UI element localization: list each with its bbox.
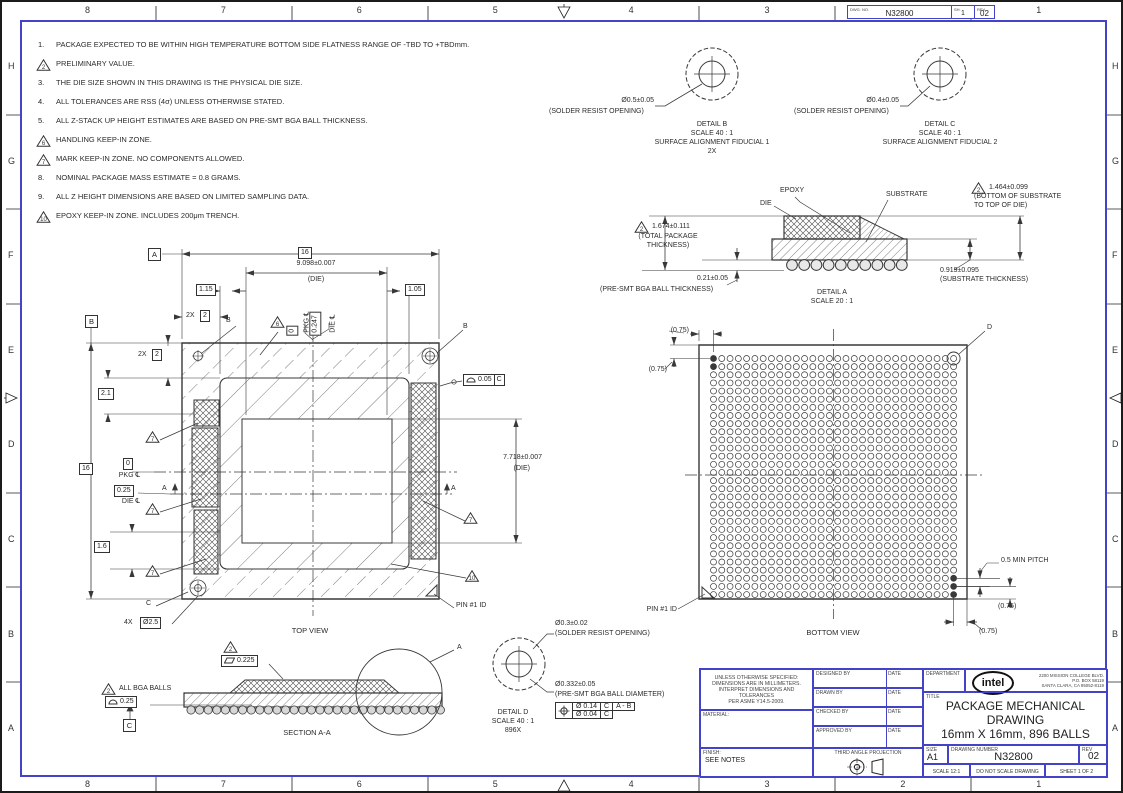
zone-col-4: 4 xyxy=(629,5,634,15)
finish-cell: FINISH: SEE NOTES xyxy=(700,748,813,778)
scale-value: SCALE 12:1 xyxy=(924,769,969,775)
flag-2: 2 xyxy=(223,641,238,653)
bottom-view-body xyxy=(665,329,1016,630)
detail-c-fiducial xyxy=(900,48,966,106)
zone-row-G: G xyxy=(1112,156,1119,166)
no-scale-note: DO NOT SCALE DRAWING xyxy=(971,769,1044,775)
detail-a-substrate-label: SUBSTRATE xyxy=(886,191,928,200)
detail-c-caption: SURFACE ALIGNMENT FIDUCIAL 2 xyxy=(883,139,998,148)
die-width-dim: 9.098±0.007 xyxy=(297,260,336,269)
bottom-view-caption: BOTTOM VIEW xyxy=(806,628,859,637)
zone-row-F: F xyxy=(1112,250,1118,260)
detail-a-bsd-note: (BOTTOM OF SUBSTRATE TO TOP OF DIE) xyxy=(974,193,1061,211)
detail-a-name: DETAIL A xyxy=(817,289,847,298)
datum-a-box: A xyxy=(148,248,161,261)
datum-c-ref: C xyxy=(146,600,151,609)
zone-row-E: E xyxy=(8,345,14,355)
detail-b-dim-note: (SOLDER RESIST OPENING) xyxy=(549,108,644,117)
scale-cell: SCALE 12:1 xyxy=(923,764,970,778)
dwg-number-strip: DWG. NO. N32800 SH. 1 REV. 02 xyxy=(847,5,995,19)
target-b-ref: B xyxy=(226,317,231,326)
zone-col-3: 3 xyxy=(765,5,770,15)
die-height-dim: 7.718±0.007 xyxy=(503,454,542,463)
zone-row-B: B xyxy=(8,629,14,639)
basic-2-dim: 2 xyxy=(200,310,210,322)
note-item: 3.THE DIE SIZE SHOWN IN THIS DRAWING IS … xyxy=(38,78,558,97)
section-aa-body xyxy=(127,649,454,735)
flatness-frame: 0.225 xyxy=(221,655,258,667)
material-cell: MATERIAL: xyxy=(700,710,813,748)
detail-b-name: DETAIL B xyxy=(697,121,727,130)
note-item: 7MARK KEEP-IN ZONE. NO COMPONENTS ALLOWE… xyxy=(38,154,558,173)
zone-col-8: 8 xyxy=(85,779,90,789)
datum-c-box: C xyxy=(123,719,136,732)
note-item: 6HANDLING KEEP-IN ZONE. xyxy=(38,135,558,154)
corner-qty: 4X xyxy=(124,619,133,628)
flag-7: 7 xyxy=(145,565,160,577)
zone-row-C: C xyxy=(1112,534,1119,544)
zone-col-7: 7 xyxy=(221,5,226,15)
ref-075: (0.75) xyxy=(979,628,997,637)
checked-by-cell: CHECKED BYDATE xyxy=(813,707,923,726)
zone-col-8: 8 xyxy=(85,5,90,15)
corner-dia-dim: Ø2.5 xyxy=(140,617,161,629)
zone-col-6: 6 xyxy=(357,779,362,789)
note-item: 4.ALL TOLERANCES ARE RSS (4σ) UNLESS OTH… xyxy=(38,97,558,116)
zone-row-C: C xyxy=(8,534,15,544)
note-item: 10EPOXY KEEP-IN ZONE. INCLUDES 200μm TRE… xyxy=(38,211,558,230)
basic-2-dim: 2 xyxy=(152,349,162,361)
detail-a-scale: SCALE 20 : 1 xyxy=(811,298,853,307)
detail-a-total-dim: 1.674±0.111 xyxy=(652,223,690,232)
department-cell: DEPARTMENT xyxy=(923,669,965,692)
pkg-cl-zero: 0 xyxy=(123,458,133,470)
zone-row-E: E xyxy=(1112,345,1118,355)
approved-by-cell: APPROVED BYDATE xyxy=(813,726,923,748)
detail-a-ref: A xyxy=(457,644,462,653)
zone-col-2: 2 xyxy=(900,779,905,789)
detail-d-scale: SCALE 40 : 1 xyxy=(492,718,534,727)
profile-tolerance-frame: 0.05 C xyxy=(463,374,505,386)
designed-by-cell: DESIGNED BYDATE xyxy=(813,669,923,688)
general-notes: 1.PACKAGE EXPECTED TO BE WITHIN HIGH TEM… xyxy=(38,40,558,230)
drawing-sheet: 8877665544332211HHGGFFEEDDCCBBAA DWG. NO… xyxy=(0,0,1123,793)
detail-a-bsd-dim: 1.464±0.099 xyxy=(989,184,1028,193)
ref-075: (0.75) xyxy=(671,327,689,336)
tolerance-note: UNLESS OTHERWISE SPECIFIED: DIMENSIONS A… xyxy=(701,675,812,705)
offset-left-dim: 1.15 xyxy=(196,284,216,296)
drawn-by-cell: DRAWN BYDATE xyxy=(813,688,923,707)
die-cl-label: DIE ℄ xyxy=(122,498,140,507)
target-b-ref: B xyxy=(463,323,468,332)
drawing-number-cell: DRAWING NUMBER N32800 xyxy=(948,745,1079,764)
dim-2-1: 2.1 xyxy=(98,388,114,400)
pitch-note: 0.5 MIN PITCH xyxy=(1001,557,1048,566)
flag-6: 6 xyxy=(270,316,285,328)
detail-b-caption: SURFACE ALIGNMENT FIDUCIAL 1 xyxy=(655,139,770,148)
detail-b-scale: SCALE 40 : 1 xyxy=(691,130,733,139)
brand-cell: intel 2200 MISSION COLLEGE BLVD. P.O. BO… xyxy=(965,669,1108,692)
sheet-cell: SHEET 1 OF 2 xyxy=(1045,764,1108,778)
offset-right-dim: 1.05 xyxy=(405,284,425,296)
die-height-note: (DIE) xyxy=(514,465,530,474)
dim-1-6: 1.6 xyxy=(94,541,110,553)
sheet-label: SH. xyxy=(954,7,961,12)
zone-row-B: B xyxy=(1112,629,1118,639)
tolerance-note-cell: UNLESS OTHERWISE SPECIFIED: DIMENSIONS A… xyxy=(700,669,813,710)
detail-a-ball-dim: 0.21±0.05 xyxy=(697,275,728,284)
zone-row-D: D xyxy=(1112,439,1119,449)
zone-row-F: F xyxy=(8,250,14,260)
profile-frame-balls: 0.25 xyxy=(105,696,137,708)
title-cell: TITLE PACKAGE MECHANICAL DRAWING 16mm X … xyxy=(923,692,1108,745)
zone-col-5: 5 xyxy=(493,779,498,789)
third-angle-label: THIRD ANGLE PROJECTION xyxy=(814,750,922,756)
dwg-no-label: DWG. NO. xyxy=(850,7,869,12)
section-a-label: A xyxy=(162,485,167,494)
pkg-height-dim: 16 xyxy=(79,463,93,475)
finish-value: SEE NOTES xyxy=(705,757,812,764)
datum-b-box: B xyxy=(85,315,98,328)
company-address: 2200 MISSION COLLEGE BLVD. P.O. BOX 5811… xyxy=(1039,673,1104,688)
sheet-note: SHEET 1 OF 2 xyxy=(1046,769,1107,775)
third-angle-projection-icon xyxy=(845,757,891,777)
svg-text:10: 10 xyxy=(469,576,476,582)
zone-row-G: G xyxy=(8,156,15,166)
detail-c-dim: Ø0.4±0.05 xyxy=(866,97,899,106)
zone-col-6: 6 xyxy=(357,5,362,15)
no-scale-cell: DO NOT SCALE DRAWING xyxy=(970,764,1045,778)
detail-a-die-label: DIE xyxy=(760,200,772,209)
detail-a-ball-note: (PRE-SMT BGA BALL THICKNESS) xyxy=(600,286,713,295)
flag-7: 7 xyxy=(145,503,160,515)
ref-075: (0.75) xyxy=(649,366,667,375)
flag-2: 2 xyxy=(101,683,116,695)
flag-10: 10 xyxy=(464,570,480,582)
flag-7: 7 xyxy=(145,431,160,443)
svg-text:10: 10 xyxy=(40,217,47,223)
zone-col-7: 7 xyxy=(221,779,226,789)
detail-c-scale: SCALE 40 : 1 xyxy=(919,130,961,139)
position-symbol-icon xyxy=(558,705,570,717)
detail-d-sro-note: (SOLDER RESIST OPENING) xyxy=(555,630,650,639)
all-bga-balls-note: ALL BGA BALLS xyxy=(119,685,171,694)
detail-d-ball-note: (PRE-SMT BGA BALL DIAMETER) xyxy=(555,691,664,700)
detail-d-name: DETAIL D xyxy=(498,709,529,718)
detail-a-balls xyxy=(787,260,908,271)
pkg-cl-label: PKG ℄ xyxy=(119,472,140,481)
zone-row-A: A xyxy=(1112,723,1118,733)
position-fcf: Ø 0.14 C A - B Ø 0.04 C xyxy=(555,702,635,719)
zone-row-A: A xyxy=(8,723,14,733)
datum-target-bottom-left xyxy=(190,580,206,596)
third-angle-cell: THIRD ANGLE PROJECTION xyxy=(813,748,923,778)
zone-col-4: 4 xyxy=(629,779,634,789)
detail-a-sub-note: (SUBSTRATE THICKNESS) xyxy=(940,276,1028,285)
detail-a-sub-dim: 0.919±0.095 xyxy=(940,267,979,276)
detail-c-dim-note: (SOLDER RESIST OPENING) xyxy=(794,108,889,117)
detail-b-qty: 2X xyxy=(708,148,717,157)
die-cl-label-rot: DIE ℄ xyxy=(329,315,338,333)
detail-b-fiducial xyxy=(655,48,738,106)
flag-2: 2 xyxy=(971,182,986,194)
title-block: UNLESS OTHERWISE SPECIFIED: DIMENSIONS A… xyxy=(699,668,1107,777)
qty-2x: 2X xyxy=(138,351,147,360)
note-item: 8.NOMINAL PACKAGE MASS ESTIMATE = 0.8 GR… xyxy=(38,173,558,192)
zone-row-D: D xyxy=(8,439,15,449)
detail-d-sro-dim: Ø0.3±0.02 xyxy=(555,620,588,629)
note-item: 9.ALL Z HEIGHT DIMENSIONS ARE BASED ON L… xyxy=(38,192,558,211)
top-view-caption: TOP VIEW xyxy=(292,626,328,635)
detail-c-name: DETAIL C xyxy=(925,121,956,130)
detail-d-ref: D xyxy=(987,324,992,333)
detail-d-ball-dim: Ø0.332±0.05 xyxy=(555,681,595,690)
qty-2x: 2X xyxy=(186,312,195,321)
die-cl-offset: 0.25 xyxy=(114,485,134,497)
die-cl-offset-rot: 0.247 xyxy=(309,312,321,336)
detail-a-total-note: (TOTAL PACKAGE THICKNESS) xyxy=(638,233,697,251)
zone-col-3: 3 xyxy=(765,779,770,789)
zone-row-H: H xyxy=(8,61,15,71)
zone-col-1: 1 xyxy=(1036,779,1041,789)
pkg-cl-zero-rot: 0 xyxy=(286,326,298,336)
datum-target-top-right xyxy=(422,348,438,364)
rev-label-strip: REV. xyxy=(977,7,986,12)
note-item: 1.PACKAGE EXPECTED TO BE WITHIN HIGH TEM… xyxy=(38,40,558,59)
section-a-label: A xyxy=(451,485,456,494)
detail-d-body xyxy=(493,634,554,692)
note-item: 5.ALL Z-STACK UP HEIGHT ESTIMATES ARE BA… xyxy=(38,116,558,135)
zone-row-H: H xyxy=(1112,61,1119,71)
zone-col-1: 1 xyxy=(1036,5,1041,15)
size-cell: SIZE A1 xyxy=(923,745,948,764)
pin1-label-bottom-view: PIN #1 ID xyxy=(647,606,677,615)
ref-075: (0.75) xyxy=(998,603,1016,612)
size-value: A1 xyxy=(927,752,947,762)
zone-col-5: 5 xyxy=(493,5,498,15)
detail-a-epoxy-label: EPOXY xyxy=(780,187,804,196)
die-width-note: (DIE) xyxy=(308,276,324,285)
flag-7: 7 xyxy=(463,512,478,524)
drawing-title: PACKAGE MECHANICAL DRAWING 16mm X 16mm, … xyxy=(924,700,1107,741)
detail-b-dim: Ø0.5±0.05 xyxy=(621,97,654,106)
detail-d-qty: 896X xyxy=(505,727,521,736)
pkg-width-dim: 16 xyxy=(298,247,312,259)
note-item: 2PRELIMINARY VALUE. xyxy=(38,59,558,78)
rev-cell: REV 02 xyxy=(1079,745,1108,764)
flag-2: 2 xyxy=(634,221,649,233)
section-aa-caption: SECTION A-A xyxy=(283,728,331,737)
pin1-label-top-view: PIN #1 ID xyxy=(456,602,486,611)
